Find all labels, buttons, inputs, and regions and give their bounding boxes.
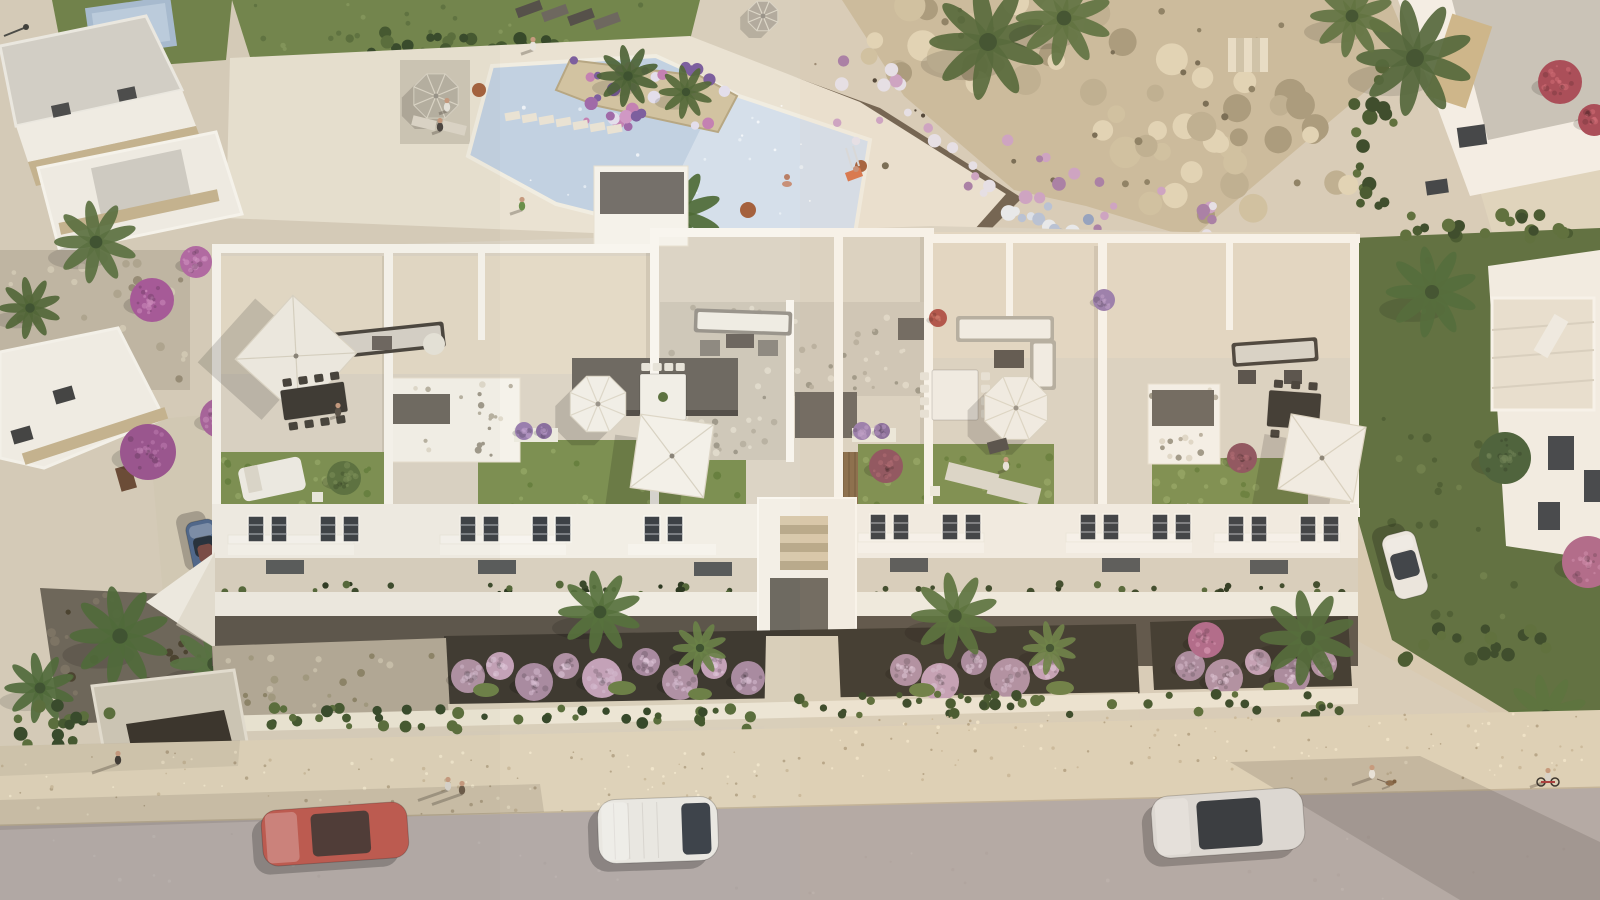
centerpiece	[658, 392, 668, 402]
coffee-table	[726, 334, 754, 348]
balcony-slab	[628, 544, 716, 555]
warm-light-overlay	[800, 0, 1600, 900]
swimmer-body	[782, 181, 792, 187]
armchair	[758, 340, 778, 356]
grass-tuft	[608, 681, 636, 695]
sofa	[694, 308, 793, 335]
swimmer-head	[784, 174, 790, 180]
white-van	[587, 796, 719, 872]
cool-shade-overlay	[0, 0, 500, 900]
lower-window	[694, 562, 732, 576]
scene-canvas	[0, 0, 1600, 900]
street	[0, 0, 1600, 900]
aerial-architectural-render	[0, 0, 1600, 900]
terracotta-pot	[740, 202, 756, 218]
grass-tuft	[688, 688, 712, 700]
bulkhead-lid	[600, 172, 684, 214]
armchair	[700, 340, 720, 356]
